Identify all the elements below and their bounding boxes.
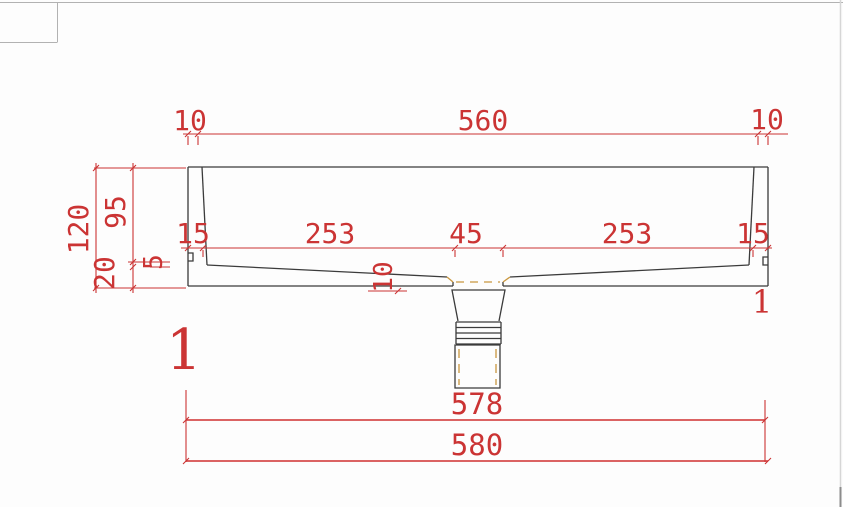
bowl-floor-slope-right — [510, 265, 749, 277]
dim-text-45: 45 — [449, 217, 483, 250]
drain-chamfer-left — [447, 277, 453, 282]
dim-text-578: 578 — [451, 387, 503, 421]
drain-pipe — [452, 290, 505, 388]
dim-text-253-right: 253 — [602, 217, 653, 250]
mark-one-left: 1 — [166, 318, 202, 383]
dim-text-top-right-10: 10 — [750, 103, 784, 136]
drain-pipe-body — [455, 345, 500, 388]
dim-ext-stubs-top — [188, 136, 768, 145]
drain-chamfer-right — [503, 277, 510, 282]
left-wall-notch — [188, 253, 193, 261]
dim-text-5: 5 — [139, 254, 169, 270]
dim-column-left: 120 95 20 5 — [62, 163, 186, 293]
drain-thread-ribs — [456, 322, 501, 344]
dim-text-580: 580 — [451, 428, 503, 462]
dim-text-drain-10-bind: 10 — [369, 261, 399, 292]
dim-row-top: 10 560 10 — [173, 103, 788, 145]
sink-section-technical-drawing: 10 560 10 120 95 20 5 15 253 45 253 15 1… — [0, 0, 843, 507]
drain-tailpiece-trapezoid — [452, 290, 505, 321]
dim-text-95: 95 — [99, 195, 132, 229]
dim-text-top-left-10: 10 — [173, 104, 207, 137]
dim-text-560: 560 — [458, 104, 509, 137]
bowl-floor-slope-left — [207, 265, 447, 277]
dim-ext-stubs-middle — [203, 250, 753, 257]
right-wall-notch — [763, 257, 768, 265]
canvas-border-lines — [0, 0, 843, 507]
dim-text-20: 20 — [88, 256, 121, 290]
dim-text-15-left: 15 — [176, 217, 210, 250]
dim-drain-drop: 10 — [368, 261, 407, 294]
cad-viewport[interactable]: 10 560 10 120 95 20 5 15 253 45 253 15 1… — [0, 0, 843, 507]
mark-one-right: 1 — [752, 283, 772, 321]
dim-row-middle: 15 253 45 253 15 — [176, 217, 772, 257]
dim-text-120: 120 — [62, 204, 95, 255]
dim-text-253-left: 253 — [305, 217, 356, 250]
dim-rows-bottom: 1 1 578 580 — [166, 283, 772, 464]
dim-text-15-right: 15 — [736, 217, 770, 250]
